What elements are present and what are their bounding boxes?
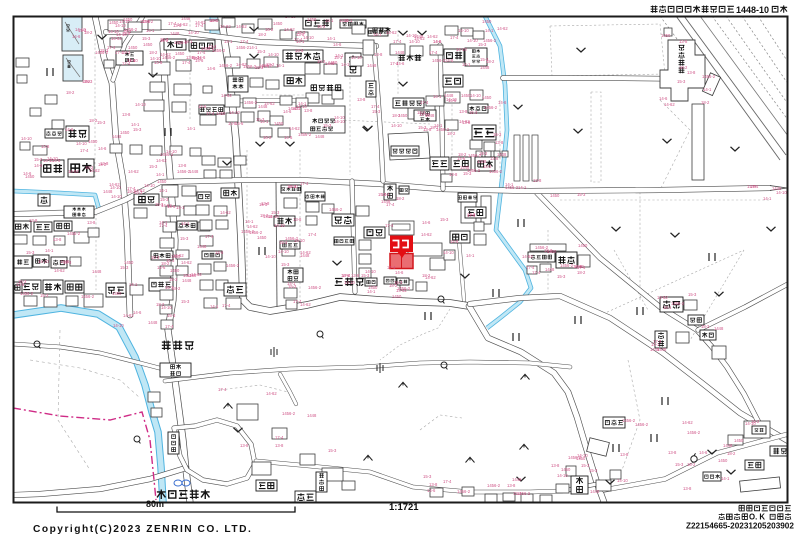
svg-text:13-8: 13-8: [495, 140, 504, 145]
svg-text:14-10: 14-10: [21, 136, 32, 141]
svg-text:1456-2: 1456-2: [124, 27, 138, 32]
svg-text:1456-2: 1456-2: [489, 169, 503, 174]
svg-text:14-62: 14-62: [220, 210, 231, 215]
svg-text:13-8: 13-8: [357, 97, 366, 102]
svg-text:14-1: 14-1: [298, 101, 307, 106]
svg-text:1450: 1450: [368, 285, 378, 290]
svg-text:17-4: 17-4: [205, 234, 214, 239]
svg-text:14-6: 14-6: [98, 146, 107, 151]
svg-text:1456-2: 1456-2: [177, 169, 191, 174]
svg-text:1450: 1450: [274, 121, 284, 126]
svg-text:14-6: 14-6: [395, 270, 404, 275]
svg-text:13-8: 13-8: [142, 19, 151, 24]
svg-text:14-1: 14-1: [159, 188, 168, 193]
svg-text:14-62: 14-62: [220, 24, 231, 29]
svg-text:15-3: 15-3: [193, 56, 202, 61]
svg-text:17-4: 17-4: [195, 23, 204, 28]
svg-text:13-8: 13-8: [668, 450, 677, 455]
svg-text:14-62: 14-62: [54, 268, 65, 273]
svg-text:1448: 1448: [545, 267, 555, 272]
svg-text:14-10: 14-10: [409, 39, 420, 44]
svg-text:17-4: 17-4: [371, 104, 380, 109]
svg-text:13-8: 13-8: [178, 163, 187, 168]
svg-text:1456-2: 1456-2: [162, 55, 176, 60]
svg-text:18-2: 18-2: [263, 135, 272, 140]
svg-text:18-2: 18-2: [396, 196, 405, 201]
svg-text:18-2: 18-2: [266, 62, 275, 67]
svg-text:1448: 1448: [103, 189, 113, 194]
svg-text:18-2: 18-2: [66, 90, 75, 95]
svg-text:15-3: 15-3: [288, 284, 297, 289]
svg-text:14-62: 14-62: [522, 254, 533, 259]
svg-text:1456-2: 1456-2: [329, 207, 343, 212]
svg-text:18-2: 18-2: [701, 100, 710, 105]
svg-text:1450: 1450: [216, 111, 226, 116]
svg-text:18-2: 18-2: [258, 32, 267, 37]
svg-text:14-6: 14-6: [167, 204, 176, 209]
svg-text:14-10: 14-10: [113, 323, 124, 328]
svg-text:14-10: 14-10: [144, 183, 155, 188]
svg-text:14-1: 14-1: [276, 63, 285, 68]
svg-text:1450: 1450: [718, 458, 728, 463]
svg-text:1450: 1450: [175, 51, 185, 56]
svg-text:14-10: 14-10: [458, 28, 469, 33]
svg-text:1456-2: 1456-2: [702, 74, 716, 79]
svg-text:14-62: 14-62: [289, 126, 300, 131]
svg-text:15-3: 15-3: [469, 110, 478, 115]
svg-text:1456-2: 1456-2: [219, 63, 233, 68]
svg-text:14-1: 14-1: [344, 18, 353, 23]
svg-text:13-8: 13-8: [16, 282, 25, 287]
svg-text:14-10: 14-10: [456, 47, 467, 52]
svg-text:18-2: 18-2: [577, 270, 586, 275]
svg-text:15-3: 15-3: [181, 299, 190, 304]
svg-text:14-10: 14-10: [166, 149, 177, 154]
svg-text:14-10: 14-10: [351, 55, 362, 60]
svg-text:15-3: 15-3: [677, 79, 686, 84]
svg-text:17-4: 17-4: [450, 35, 459, 40]
svg-text:14-1: 14-1: [462, 62, 471, 67]
svg-text:14-10: 14-10: [150, 56, 161, 61]
svg-text:14-10: 14-10: [75, 27, 86, 32]
svg-text:14-1: 14-1: [156, 172, 165, 177]
svg-text:17-4: 17-4: [80, 148, 89, 153]
svg-text:17-4: 17-4: [300, 181, 309, 186]
svg-text:17-4: 17-4: [443, 479, 452, 484]
svg-text:14-6: 14-6: [333, 42, 342, 47]
svg-text:14-62: 14-62: [386, 30, 397, 35]
svg-text:14-62: 14-62: [427, 34, 438, 39]
svg-text:13-8: 13-8: [293, 217, 302, 222]
svg-text:1456-2: 1456-2: [212, 48, 226, 53]
svg-text:1456-2: 1456-2: [201, 46, 215, 51]
svg-text:1448: 1448: [497, 152, 507, 157]
svg-text:1450: 1450: [257, 235, 267, 240]
svg-text:14-1: 14-1: [146, 28, 155, 33]
svg-text:14-10: 14-10: [303, 35, 314, 40]
svg-text:1448: 1448: [723, 443, 733, 448]
svg-text:14-62: 14-62: [284, 27, 295, 32]
svg-text:18-2: 18-2: [701, 324, 710, 329]
svg-text:1456-2: 1456-2: [468, 153, 482, 158]
svg-text:18-2: 18-2: [160, 38, 169, 43]
svg-text:14-6: 14-6: [235, 121, 244, 126]
svg-text:15-3: 15-3: [167, 313, 176, 318]
svg-text:14-6: 14-6: [396, 61, 405, 66]
svg-text:14-6: 14-6: [133, 310, 142, 315]
svg-text:1448: 1448: [112, 134, 122, 139]
svg-text:17-4: 17-4: [385, 223, 394, 228]
svg-text:14-62: 14-62: [236, 24, 247, 29]
svg-text:1448: 1448: [315, 134, 325, 139]
svg-text:15-3: 15-3: [513, 491, 522, 496]
svg-text:13-8: 13-8: [41, 144, 50, 149]
svg-text:15-3: 15-3: [40, 293, 49, 298]
svg-text:13-8: 13-8: [620, 452, 629, 457]
svg-text:17-4: 17-4: [308, 232, 317, 237]
svg-text:14-6: 14-6: [65, 127, 74, 132]
svg-text:14-10: 14-10: [38, 259, 49, 264]
svg-text:13-8: 13-8: [533, 178, 542, 183]
svg-text:1456-2: 1456-2: [560, 263, 574, 268]
svg-text:14-6: 14-6: [34, 163, 43, 168]
svg-text:14-1: 14-1: [129, 282, 138, 287]
svg-text:14-1: 14-1: [485, 28, 494, 33]
svg-text:14-62: 14-62: [221, 93, 232, 98]
svg-text:1450: 1450: [123, 17, 133, 22]
svg-text:17-4: 17-4: [240, 39, 249, 44]
svg-text:17-4: 17-4: [532, 270, 541, 275]
svg-text:14-1: 14-1: [292, 106, 301, 111]
svg-text:14-62: 14-62: [425, 275, 436, 280]
svg-text:1448: 1448: [714, 326, 724, 331]
svg-text:1456-2: 1456-2: [432, 58, 446, 63]
svg-text:14-1: 14-1: [45, 248, 54, 253]
svg-text:14-10: 14-10: [111, 194, 122, 199]
svg-text:17-4: 17-4: [386, 202, 395, 207]
svg-text:13-8: 13-8: [275, 443, 284, 448]
svg-text:1450: 1450: [392, 294, 402, 299]
svg-text:1456-2: 1456-2: [622, 418, 636, 423]
svg-text:1450: 1450: [661, 33, 671, 38]
svg-text:1448: 1448: [480, 65, 490, 70]
svg-text:1456-2: 1456-2: [635, 422, 649, 427]
svg-text:17-4: 17-4: [420, 100, 429, 105]
svg-text:14-10: 14-10: [419, 112, 430, 117]
svg-text:17-4: 17-4: [222, 303, 231, 308]
svg-text:1456-2: 1456-2: [20, 291, 34, 296]
svg-text:17-4: 17-4: [165, 324, 174, 329]
svg-text:14-6: 14-6: [52, 158, 61, 163]
svg-text:1456-2: 1456-2: [95, 50, 109, 55]
svg-text:14-10: 14-10: [265, 254, 276, 259]
svg-text:14-1: 14-1: [260, 119, 269, 124]
svg-text:1448: 1448: [657, 347, 667, 352]
svg-text:14-10: 14-10: [76, 141, 87, 146]
svg-text:1448: 1448: [477, 159, 487, 164]
svg-text:14-1: 14-1: [703, 87, 712, 92]
svg-text:15-3: 15-3: [26, 250, 35, 255]
svg-text:1448: 1448: [367, 63, 377, 68]
svg-text:1448: 1448: [189, 169, 199, 174]
svg-text:14-6: 14-6: [450, 239, 459, 244]
svg-text:18-2: 18-2: [260, 213, 269, 218]
svg-text:15-3: 15-3: [281, 262, 290, 267]
svg-text:13-8: 13-8: [240, 443, 249, 448]
svg-text:13-8: 13-8: [304, 108, 313, 113]
svg-text:14-1: 14-1: [187, 126, 196, 131]
svg-text:1450: 1450: [88, 139, 98, 144]
svg-text:14-10: 14-10: [467, 38, 478, 43]
svg-text:14-6: 14-6: [433, 39, 442, 44]
svg-text:14-10: 14-10: [135, 102, 146, 107]
svg-text:14-1: 14-1: [210, 304, 219, 309]
svg-text:14-62: 14-62: [128, 169, 139, 174]
svg-text:1456-2: 1456-2: [285, 236, 299, 241]
svg-text:1456-2: 1456-2: [308, 285, 322, 290]
svg-text:18-2: 18-2: [447, 131, 456, 136]
svg-text:1448: 1448: [182, 278, 192, 283]
svg-text:1448: 1448: [148, 320, 158, 325]
svg-text:1448: 1448: [444, 93, 454, 98]
svg-text:14-10: 14-10: [229, 110, 240, 115]
svg-text:14-1: 14-1: [245, 219, 254, 224]
svg-text:18-2: 18-2: [149, 50, 158, 55]
svg-text:14-6: 14-6: [198, 104, 207, 109]
svg-text:14-62: 14-62: [497, 26, 508, 31]
svg-text:15-3: 15-3: [361, 273, 370, 278]
svg-text:14-6: 14-6: [295, 48, 304, 53]
svg-text:14-1: 14-1: [327, 36, 336, 41]
svg-text:1450: 1450: [482, 19, 492, 24]
svg-text:80m: 80m: [146, 499, 164, 509]
svg-text:18-2: 18-2: [172, 286, 181, 291]
svg-text:17-4: 17-4: [275, 435, 284, 440]
svg-text:1450: 1450: [307, 17, 317, 22]
svg-text:1450: 1450: [561, 467, 571, 472]
svg-text:1448: 1448: [772, 186, 782, 191]
svg-text:15-3: 15-3: [372, 109, 381, 114]
svg-text:15-3: 15-3: [169, 277, 178, 282]
svg-text:14-1: 14-1: [433, 94, 442, 99]
svg-text:15-3: 15-3: [493, 132, 502, 137]
svg-text:18-2: 18-2: [82, 79, 91, 84]
svg-text:14-10: 14-10: [161, 305, 172, 310]
svg-text:14-62: 14-62: [300, 250, 311, 255]
svg-text:14-62: 14-62: [111, 36, 122, 41]
svg-text:14-62: 14-62: [664, 102, 675, 107]
svg-text:17-4: 17-4: [159, 223, 168, 228]
svg-text:O. K: O. K: [749, 513, 765, 522]
svg-text:15-3: 15-3: [97, 120, 106, 125]
svg-text:1450: 1450: [273, 21, 283, 26]
svg-text:17-4: 17-4: [653, 339, 662, 344]
svg-text:15-3: 15-3: [688, 292, 697, 297]
svg-text:15-3: 15-3: [577, 192, 586, 197]
svg-text:15-3: 15-3: [120, 265, 129, 270]
svg-text:14-1: 14-1: [763, 196, 772, 201]
svg-text:14-6: 14-6: [498, 100, 507, 105]
svg-text:15-3: 15-3: [323, 123, 332, 128]
svg-text:14-62: 14-62: [177, 22, 188, 27]
svg-text:14-6: 14-6: [574, 264, 583, 269]
svg-text:14-62: 14-62: [264, 101, 275, 106]
svg-text:14-62: 14-62: [89, 168, 100, 173]
svg-text:13-8: 13-8: [683, 486, 692, 491]
svg-text:15-3: 15-3: [440, 217, 449, 222]
svg-text:14-1: 14-1: [176, 205, 185, 210]
svg-text:18-2: 18-2: [687, 462, 696, 467]
svg-text:14-1: 14-1: [210, 18, 219, 23]
svg-text:1448: 1448: [590, 489, 600, 494]
svg-text:14-62: 14-62: [682, 420, 693, 425]
svg-text:14-10: 14-10: [391, 123, 402, 128]
svg-text:1450: 1450: [112, 291, 122, 296]
svg-text:1456-2: 1456-2: [226, 263, 240, 268]
svg-text:18-2: 18-2: [458, 152, 467, 157]
svg-text:15-3: 15-3: [134, 190, 143, 195]
svg-text:13-8: 13-8: [449, 172, 458, 177]
svg-text:1448: 1448: [307, 413, 317, 418]
svg-text:14-6: 14-6: [207, 66, 216, 71]
svg-text:17-4: 17-4: [122, 61, 131, 66]
svg-text:1450: 1450: [578, 243, 588, 248]
svg-text:14-10: 14-10: [443, 250, 454, 255]
svg-text:1456-2: 1456-2: [298, 132, 312, 137]
svg-text:1450: 1450: [328, 60, 338, 65]
svg-text:1456-2: 1456-2: [243, 64, 257, 69]
svg-text:1456-2: 1456-2: [487, 483, 501, 488]
svg-text:1448: 1448: [747, 184, 757, 189]
svg-text:1448-10: 1448-10: [736, 5, 769, 15]
svg-text:1448: 1448: [197, 244, 207, 249]
svg-text:15-3: 15-3: [34, 157, 43, 162]
svg-text:18-2: 18-2: [98, 162, 107, 167]
svg-text:1450: 1450: [124, 260, 134, 265]
svg-text:17-4: 17-4: [218, 387, 227, 392]
svg-text:15-3: 15-3: [180, 236, 189, 241]
svg-text:1456-2: 1456-2: [457, 489, 471, 494]
svg-text:1456-2: 1456-2: [687, 430, 701, 435]
svg-text:18-2: 18-2: [727, 451, 736, 456]
svg-text:14-1: 14-1: [296, 39, 305, 44]
svg-text:13-8: 13-8: [459, 109, 468, 114]
svg-text:14-1: 14-1: [224, 39, 233, 44]
svg-text:15-3: 15-3: [394, 280, 403, 285]
svg-text:14-6: 14-6: [427, 488, 436, 493]
svg-text:1456-2: 1456-2: [483, 38, 497, 43]
svg-text:14-6: 14-6: [72, 34, 81, 39]
svg-text:1450: 1450: [143, 42, 153, 47]
svg-text:14-62: 14-62: [156, 158, 167, 163]
svg-text:15-3: 15-3: [257, 49, 266, 54]
svg-text:Z22154665-20231205203902: Z22154665-20231205203902: [686, 522, 794, 531]
svg-text:15-3: 15-3: [142, 36, 151, 41]
svg-text:1450: 1450: [398, 113, 408, 118]
svg-text:14-10: 14-10: [334, 119, 345, 124]
svg-text:14-10: 14-10: [577, 453, 588, 458]
svg-text:14-1: 14-1: [721, 476, 730, 481]
svg-text:13-8: 13-8: [679, 39, 688, 44]
svg-text:13-8: 13-8: [462, 120, 471, 125]
svg-text:14-1: 14-1: [184, 39, 193, 44]
svg-text:15-3: 15-3: [133, 127, 142, 132]
svg-text:14-62: 14-62: [657, 295, 668, 300]
svg-text:14-10: 14-10: [268, 52, 279, 57]
svg-text:15-3: 15-3: [328, 448, 337, 453]
svg-text:14-62: 14-62: [109, 182, 120, 187]
svg-text:14-62: 14-62: [421, 232, 432, 237]
svg-text:14-10: 14-10: [344, 280, 355, 285]
svg-text:17-4: 17-4: [182, 60, 191, 65]
svg-text:1448: 1448: [92, 269, 102, 274]
svg-text:14-1: 14-1: [466, 253, 475, 258]
svg-text:14-6: 14-6: [23, 171, 32, 176]
svg-text:1448: 1448: [170, 31, 180, 36]
svg-text:14-62: 14-62: [68, 169, 79, 174]
svg-text:15-3: 15-3: [557, 274, 566, 279]
svg-text:13-8: 13-8: [122, 112, 131, 117]
svg-text:17-4: 17-4: [168, 21, 177, 26]
svg-text:1450: 1450: [734, 438, 744, 443]
svg-text:17-4: 17-4: [393, 39, 402, 44]
svg-text:1456-2: 1456-2: [282, 411, 296, 416]
svg-text:18-2: 18-2: [751, 419, 760, 424]
svg-text:1450: 1450: [170, 268, 180, 273]
svg-text:Copyright(C)2023 ZENRIN CO. LT: Copyright(C)2023 ZENRIN CO. LTD.: [33, 524, 252, 535]
svg-text:1450: 1450: [120, 130, 130, 135]
svg-text:17-4: 17-4: [115, 50, 124, 55]
svg-text:15-3: 15-3: [151, 255, 160, 260]
svg-text:15-3: 15-3: [480, 57, 489, 62]
svg-text:14-1: 14-1: [325, 18, 334, 23]
svg-text:1450: 1450: [482, 95, 492, 100]
svg-text:1450: 1450: [157, 179, 167, 184]
svg-text:1448: 1448: [460, 165, 470, 170]
svg-text:1456-2: 1456-2: [81, 294, 95, 299]
svg-text:15-3: 15-3: [418, 125, 427, 130]
svg-text:18-2: 18-2: [89, 118, 98, 123]
svg-text:14-1: 14-1: [505, 182, 514, 187]
svg-text:1450: 1450: [187, 273, 197, 278]
svg-text:1:1721: 1:1721: [389, 502, 419, 513]
svg-text:13-8: 13-8: [53, 237, 62, 242]
svg-text:14-10: 14-10: [188, 30, 199, 35]
svg-text:17-4: 17-4: [429, 50, 438, 55]
svg-text:15-3: 15-3: [378, 192, 387, 197]
svg-text:14-1: 14-1: [373, 32, 382, 37]
svg-text:1456-2: 1456-2: [67, 231, 81, 236]
svg-text:17-4: 17-4: [342, 273, 351, 278]
svg-text:15-3: 15-3: [149, 164, 158, 169]
svg-text:14-62: 14-62: [300, 302, 311, 307]
svg-text:15-3: 15-3: [589, 468, 598, 473]
svg-text:13-8: 13-8: [351, 273, 360, 278]
svg-text:1450: 1450: [550, 193, 560, 198]
svg-text:17-4: 17-4: [206, 111, 215, 116]
svg-text:15-3: 15-3: [297, 30, 306, 35]
svg-text:14-10: 14-10: [470, 93, 481, 98]
svg-text:1456-2: 1456-2: [484, 105, 498, 110]
svg-text:15-3: 15-3: [675, 462, 684, 467]
svg-text:1448: 1448: [512, 477, 522, 482]
svg-text:14-10: 14-10: [287, 184, 298, 189]
svg-text:13-8: 13-8: [507, 483, 516, 488]
svg-text:15-3: 15-3: [160, 197, 169, 202]
svg-text:14-6: 14-6: [215, 250, 224, 255]
svg-text:15-3: 15-3: [63, 260, 72, 265]
svg-text:14-1: 14-1: [518, 185, 527, 190]
